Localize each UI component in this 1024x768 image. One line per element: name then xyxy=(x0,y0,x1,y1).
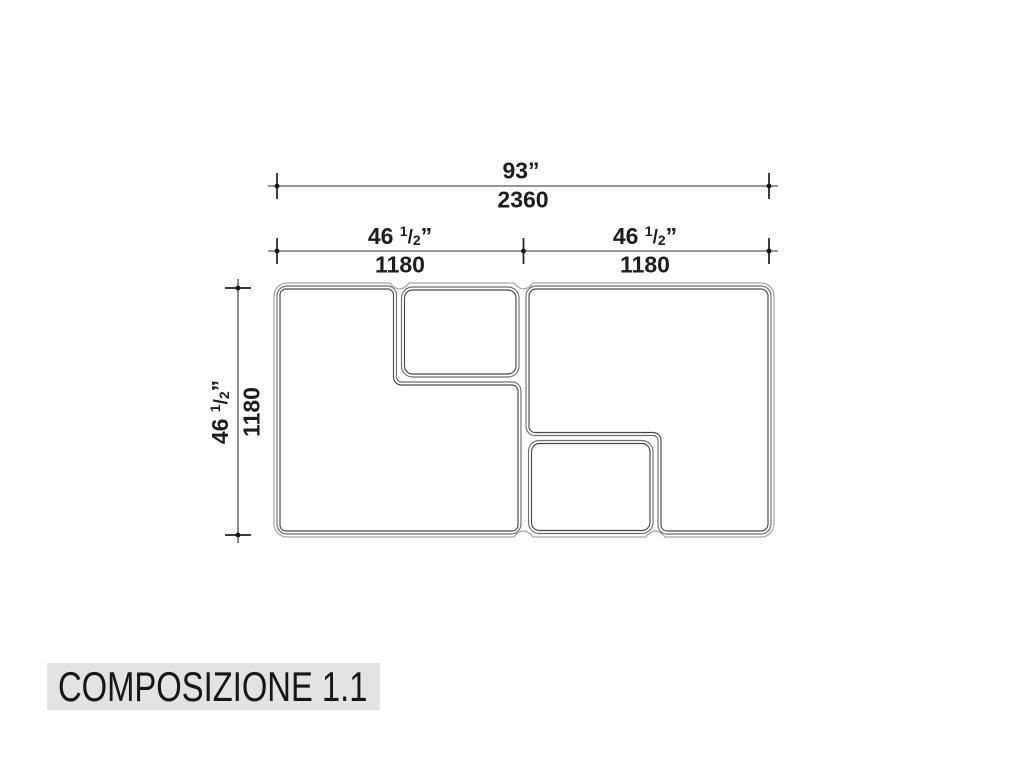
dim-label-right-half-mm: 1180 xyxy=(620,254,670,277)
technical-drawing xyxy=(0,0,1024,768)
dim-quote: ” xyxy=(421,223,433,249)
module-right-outer xyxy=(526,286,771,534)
dim-frac-num: 1 xyxy=(207,404,223,412)
envelope-outline xyxy=(274,283,774,537)
dim-frac-den: 2 xyxy=(658,232,666,248)
module-top-small-outer xyxy=(402,287,520,377)
dim-dot xyxy=(275,249,280,254)
dim-dot xyxy=(236,533,241,538)
dim-frac-num: 1 xyxy=(645,223,653,239)
dim-label-height-mm: 1180 xyxy=(241,387,264,437)
dim-dot xyxy=(767,249,772,254)
dim-whole: 46 xyxy=(613,223,639,249)
dim-dot xyxy=(236,286,241,291)
module-top-small-inner xyxy=(405,290,517,374)
dim-label-height-inches: 46 1/2” xyxy=(208,380,232,444)
dim-label-overall-inches: 93” xyxy=(502,160,539,183)
module-bottom-small-inner xyxy=(532,444,651,531)
module-left-outer xyxy=(277,286,521,534)
module-bottom-small-outer xyxy=(529,441,654,534)
dim-label-right-half-inches: 46 1/2” xyxy=(613,224,677,248)
dim-label-overall-mm: 2360 xyxy=(497,189,548,212)
dim-whole: 46 xyxy=(368,223,394,249)
module-right-inner xyxy=(529,289,768,531)
dim-quote: ” xyxy=(207,380,233,392)
dimension-half-widths xyxy=(268,238,778,264)
dim-dot xyxy=(767,184,772,189)
dim-frac-slash: / xyxy=(211,399,232,404)
dim-frac-den: 2 xyxy=(413,232,421,248)
dim-frac-num: 1 xyxy=(400,223,408,239)
page: 93” 2360 46 1/2” 1180 46 1/2” 1180 46 1/… xyxy=(0,0,1024,768)
dim-label-left-half-inches: 46 1/2” xyxy=(368,224,432,248)
dim-dot xyxy=(275,184,280,189)
dim-quote: ” xyxy=(666,223,678,249)
composition-modules xyxy=(274,283,774,537)
composition-title-bar: COMPOSIZIONE 1.1 xyxy=(47,663,380,710)
composition-title: COMPOSIZIONE 1.1 xyxy=(58,666,367,708)
dim-dot xyxy=(521,249,526,254)
module-left-inner xyxy=(280,289,518,531)
dim-label-left-half-mm: 1180 xyxy=(375,254,425,277)
dim-frac-den: 2 xyxy=(216,391,232,399)
dim-whole: 46 xyxy=(207,419,233,445)
